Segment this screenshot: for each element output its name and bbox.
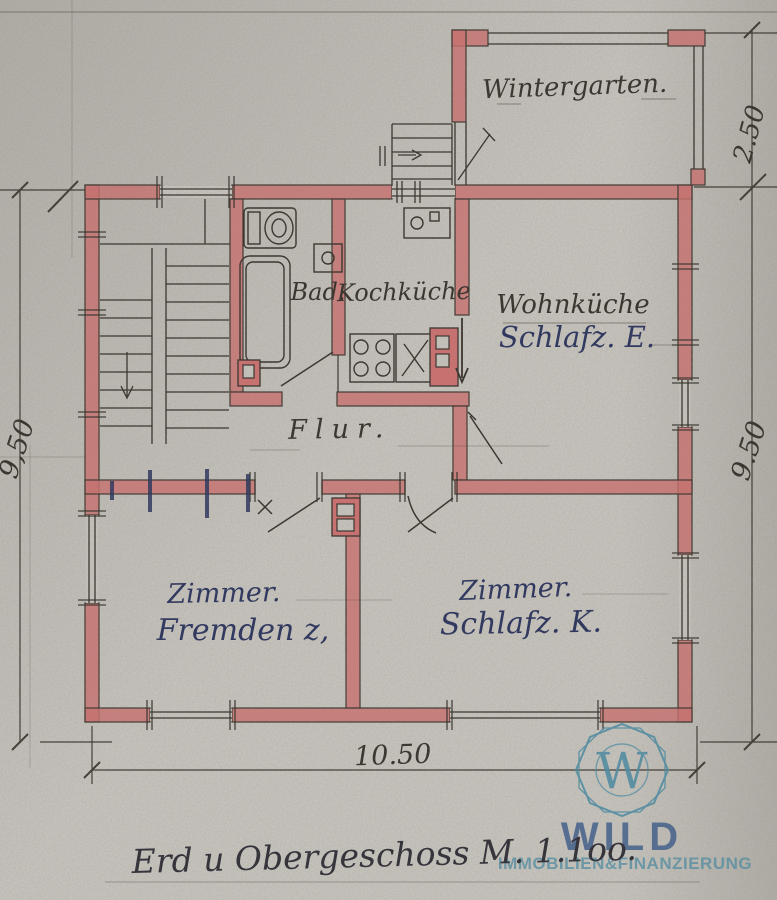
scanned-floor-plan: 9,50 2.50 9.50 10.50 xyxy=(0,0,777,900)
floor-plan-drawing: 9,50 2.50 9.50 10.50 xyxy=(0,0,777,900)
grain-overlay xyxy=(0,0,777,900)
